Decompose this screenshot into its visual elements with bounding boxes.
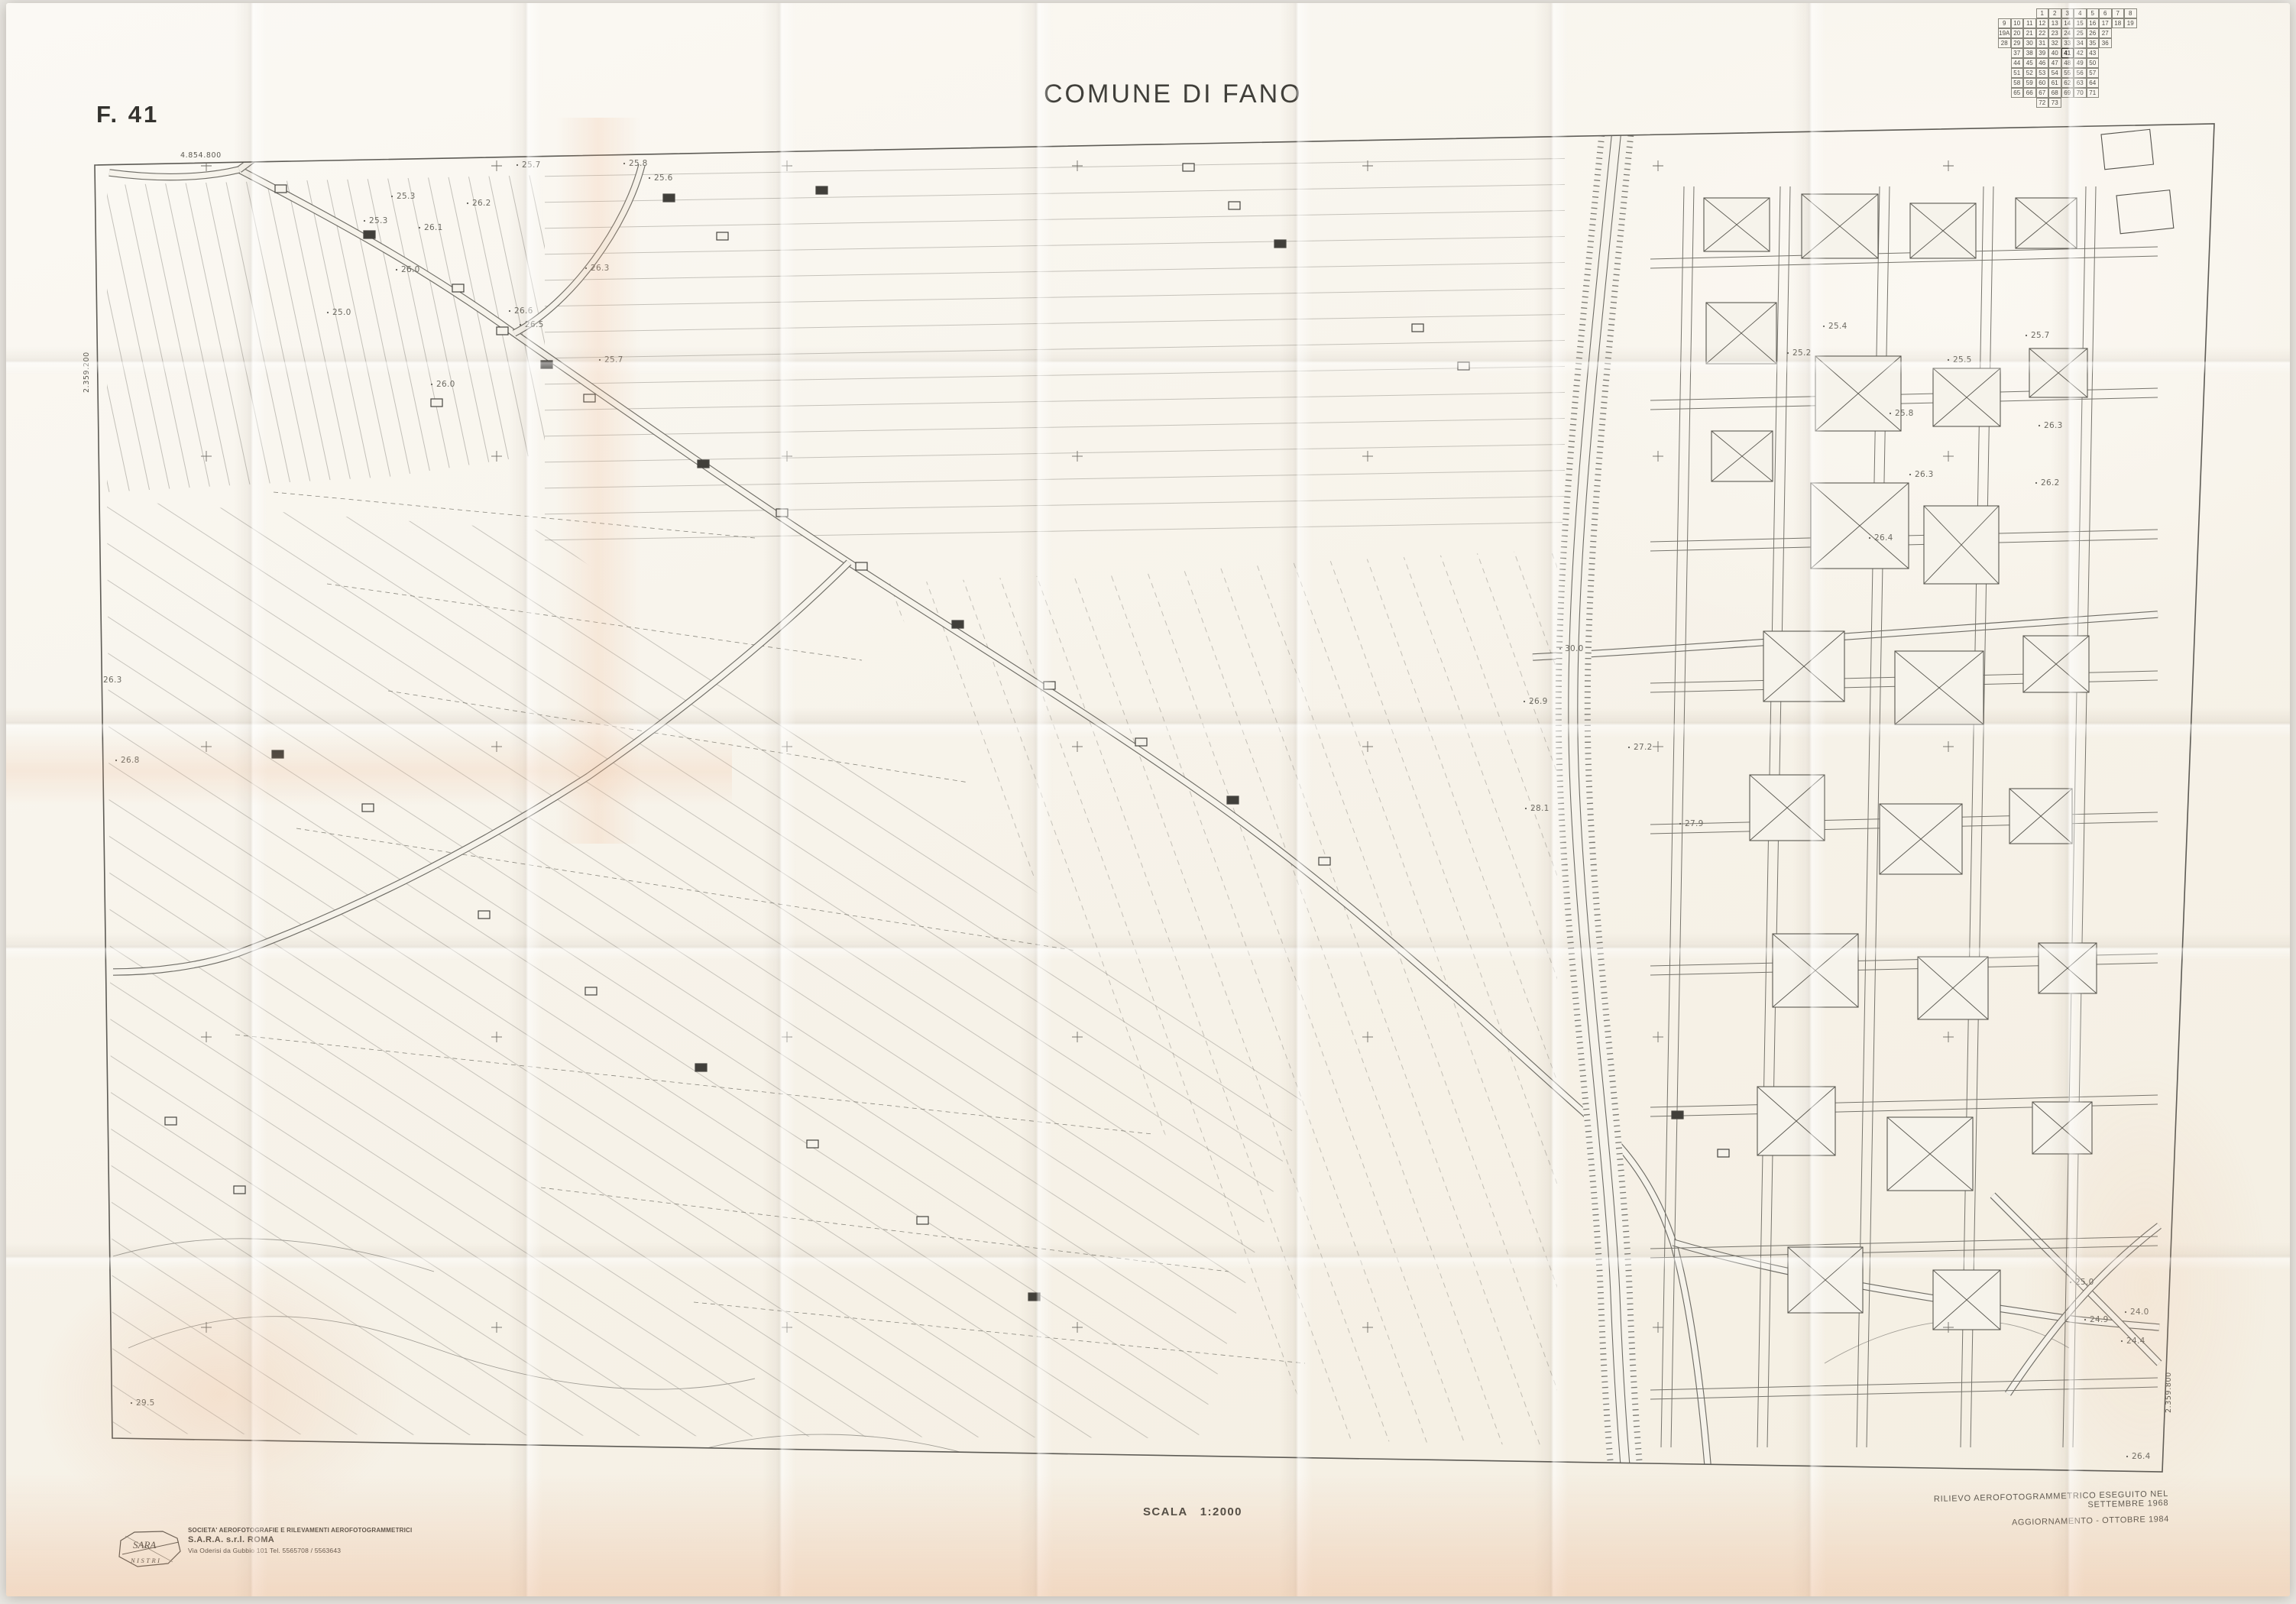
building-block-crossed [2009, 789, 2072, 844]
spot-height-dot [1679, 823, 1681, 825]
spot-height-dot [225, 1457, 226, 1459]
house [362, 804, 374, 812]
spot-height-label: 26.0 [436, 380, 455, 389]
spot-height-label: 27.9 [1685, 819, 1704, 828]
house [364, 231, 375, 238]
field-strips-topcenter [545, 141, 1565, 546]
index-cell: 13 [2048, 18, 2061, 28]
house [541, 361, 552, 368]
index-cell: 29 [2011, 38, 2024, 48]
spot-height-label: 25.3 [397, 192, 416, 201]
house [695, 1064, 707, 1071]
spot-height-dot [1787, 352, 1789, 354]
building-block-crossed [1788, 1247, 1863, 1313]
spot-height-dot [2026, 335, 2027, 336]
index-cell: 48 [2061, 58, 2074, 68]
frame-coordinate-right: 2.359.800 [2165, 1372, 2173, 1413]
map-sheet: 25.725.825.625.326.226.125.326.026.325.0… [6, 3, 2290, 1596]
sheet-index-grid: 1234567891011121314151617181919A20212223… [1998, 8, 2137, 108]
house [856, 562, 867, 570]
spot-height-label: 26.3 [1915, 470, 1934, 479]
spot-height-label: 25.7 [522, 160, 541, 170]
index-cell: 54 [2048, 68, 2061, 78]
spot-height-label: 26.3 [103, 676, 122, 685]
building-block-crossed [2039, 943, 2097, 993]
spot-height-label: 25.7 [2031, 331, 2050, 340]
spot-height-label: 25.6 [654, 173, 673, 183]
spot-height-dot [1869, 537, 1870, 539]
field-parcels-layer [107, 141, 1565, 1446]
spot-height-label: 26.6 [514, 306, 533, 316]
house [1672, 1111, 1683, 1119]
spot-height-dot [364, 220, 365, 222]
index-cell: 47 [2048, 58, 2061, 68]
spot-height-label: 25.8 [629, 159, 648, 168]
index-cell: 26 [2087, 28, 2100, 38]
building-block-crossed [1880, 804, 1962, 874]
railway-layer [1559, 130, 1640, 1475]
spot-height-dot [585, 267, 587, 269]
index-cell: 11 [2023, 18, 2036, 28]
spot-height-dot [98, 679, 99, 681]
spot-height-label: 25.3 [369, 216, 388, 225]
house [1458, 362, 1469, 370]
building-block-crossed [1933, 1270, 2000, 1330]
urban-blocks-layer [1650, 69, 2174, 1447]
index-cell: 59 [2023, 78, 2036, 88]
building-outline [2101, 129, 2153, 169]
street-line [1650, 1387, 2158, 1399]
street-line [1650, 1236, 2158, 1249]
spot-height-label: 26.9 [1529, 697, 1548, 706]
spot-height-dot [419, 227, 420, 228]
index-cell: 51 [2011, 68, 2024, 78]
spot-height-dot [396, 269, 397, 271]
spot-height-label: 30.0 [1565, 644, 1584, 653]
index-cell: 16 [2087, 18, 2100, 28]
spot-height-label: 24.4 [2126, 1337, 2145, 1346]
index-cell: 19A [1998, 28, 2011, 38]
index-cell: 38 [2023, 48, 2036, 58]
index-cell: 31 [2036, 38, 2049, 48]
spot-height-dot [1628, 747, 1630, 748]
spot-height-dot [1890, 413, 1891, 414]
index-cell: 55 [2061, 68, 2074, 78]
house [1044, 682, 1055, 689]
spot-height-label: 25.5 [1953, 355, 1972, 365]
index-cell: 61 [2048, 78, 2061, 88]
house [717, 232, 728, 240]
index-cell: 50 [2087, 58, 2100, 68]
spot-height-label: 28.1 [1530, 804, 1550, 813]
index-cell: 22 [2036, 28, 2049, 38]
index-cell: 66 [2023, 88, 2036, 98]
spot-height-label: 26.8 [121, 756, 140, 765]
index-cell: 10 [2011, 18, 2024, 28]
index-cell: 63 [2074, 78, 2087, 88]
stream-layer [121, 1478, 541, 1524]
spot-height-dot [1948, 359, 1949, 361]
index-cell: 62 [2061, 78, 2074, 88]
spot-height-label: 29.9 [230, 1453, 249, 1463]
index-cell: 21 [2023, 28, 2036, 38]
spot-height-dot [1823, 326, 1825, 327]
index-cell: 45 [2023, 58, 2036, 68]
spot-height-dot [599, 359, 601, 361]
publisher-logo: SARA NISTRI [119, 1531, 180, 1567]
index-cell: 46 [2036, 58, 2049, 68]
index-cell: 57 [2087, 68, 2100, 78]
spot-height-label: 25.0 [2075, 1278, 2094, 1287]
building-block-crossed [2032, 1102, 2092, 1154]
map-title: COMUNE DI FANO [1044, 79, 1303, 109]
index-cell: 58 [2011, 78, 2024, 88]
index-cell: 49 [2074, 58, 2087, 68]
house [1028, 1293, 1040, 1301]
spot-height-dot [2070, 1282, 2071, 1283]
building-block-crossed [1706, 303, 1776, 364]
index-cell: 9 [1998, 18, 2011, 28]
house [1227, 796, 1239, 804]
scale-label: SCALA 1:2000 [1143, 1505, 1242, 1518]
spot-height-label: 29.5 [136, 1398, 155, 1408]
index-cell: 67 [2036, 88, 2049, 98]
house [952, 621, 963, 628]
house [478, 911, 490, 919]
spot-height-dot [2121, 1340, 2123, 1342]
index-cell: 39 [2036, 48, 2049, 58]
index-cell: 40 [2048, 48, 2061, 58]
house [165, 1117, 176, 1125]
road-surface [239, 92, 336, 170]
house [272, 750, 283, 758]
house [663, 194, 675, 202]
road-casing [239, 92, 336, 170]
house [1135, 738, 1147, 746]
building-block-crossed [1924, 506, 1999, 584]
index-cell: 19 [2124, 18, 2137, 28]
spot-height-label: 25.2 [1792, 348, 1812, 358]
house [275, 185, 287, 193]
house [807, 1140, 818, 1148]
index-cell: 15 [2074, 18, 2087, 28]
building-block-crossed [1918, 957, 1988, 1019]
street-line [1650, 1378, 2158, 1390]
spot-height-dot [327, 312, 329, 313]
building-block-crossed [1773, 934, 1858, 1007]
publisher-line3: Via Oderisi da Gubbio 101 Tel. 5565708 /… [188, 1547, 412, 1554]
house [698, 460, 709, 468]
spot-height-dot [2126, 1456, 2128, 1457]
house [1718, 1149, 1729, 1157]
building-block-crossed [1763, 631, 1844, 702]
house [584, 394, 595, 402]
spot-height-label: 26.3 [2044, 421, 2063, 430]
house [1183, 164, 1194, 171]
building-block-crossed [1895, 651, 1983, 724]
house [917, 1217, 928, 1224]
house [1229, 202, 1240, 209]
spot-height-label: 26.3 [591, 264, 610, 273]
spot-height-dot [467, 203, 468, 204]
house [1412, 324, 1423, 332]
index-cell: 52 [2023, 68, 2036, 78]
index-cell: 18 [2112, 18, 2125, 28]
house [585, 987, 597, 995]
index-cell: 72 [2036, 98, 2049, 108]
building-block-crossed [1910, 203, 1976, 258]
spot-height-dot [1559, 648, 1561, 650]
railway-corridor [1573, 130, 1626, 1475]
spot-height-label: 25.7 [604, 355, 623, 365]
index-cell: 37 [2011, 48, 2024, 58]
spot-height-dot [649, 177, 650, 179]
index-cell: 56 [2074, 68, 2087, 78]
spot-height-label: 26.2 [472, 199, 491, 208]
index-cell: 32 [2048, 38, 2061, 48]
index-cell: 3 [2061, 8, 2074, 18]
spot-height-dot [517, 164, 518, 166]
index-cell: 44 [2011, 58, 2024, 68]
index-cell: 34 [2074, 38, 2087, 48]
street-line [1671, 186, 1694, 1447]
spot-height-label: 26.4 [2132, 1452, 2151, 1461]
index-cell: 42 [2074, 48, 2087, 58]
road-surface [109, 170, 239, 177]
logo-text-secondary: NISTRI [130, 1557, 162, 1564]
house [452, 284, 464, 292]
index-cell: 6 [2099, 8, 2112, 18]
index-cell: 68 [2048, 88, 2061, 98]
spot-height-dot [509, 310, 510, 312]
index-cell: 14 [2061, 18, 2074, 28]
index-cell: 30 [2023, 38, 2036, 48]
index-cell: 4 [2074, 8, 2087, 18]
spot-height-label: 26.1 [424, 223, 443, 232]
index-cell: 73 [2048, 98, 2061, 108]
index-cell: 2 [2048, 8, 2061, 18]
spot-height-dot [115, 760, 117, 761]
building-block-crossed [1802, 194, 1878, 258]
index-cell: 43 [2087, 48, 2100, 58]
building-block-crossed [1887, 1117, 1973, 1191]
spot-height-dot [1909, 474, 1911, 475]
house [1319, 857, 1330, 865]
index-cell: 7 [2112, 8, 2125, 18]
house [816, 186, 827, 194]
spot-height-label: 25.0 [332, 308, 351, 317]
street-line [1650, 256, 2158, 268]
index-cell: 20 [2011, 28, 2024, 38]
index-cell: 70 [2074, 88, 2087, 98]
spot-height-label: 26.0 [401, 265, 420, 274]
stream-line [121, 1478, 541, 1524]
spot-height-dot [2084, 1319, 2086, 1320]
building-block-crossed [1811, 483, 1909, 569]
spot-height-dot [2039, 425, 2040, 426]
house [763, 141, 774, 148]
frame-coordinate-left: 2.359.200 [83, 352, 91, 393]
index-cell: 24 [2061, 28, 2074, 38]
index-cell: 65 [2011, 88, 2024, 98]
building-block-crossed [1815, 356, 1901, 431]
index-cell: 28 [1998, 38, 2011, 48]
house [431, 399, 442, 407]
publisher-line2: S.A.R.A. s.r.l. ROMA [188, 1535, 412, 1544]
spot-height-label: 24.0 [2130, 1308, 2149, 1317]
logo-text-primary: SARA [133, 1539, 156, 1551]
index-cell: 17 [2099, 18, 2112, 28]
index-cell: 71 [2087, 88, 2100, 98]
spot-height-label: 26.2 [2041, 478, 2060, 488]
spot-height-dot [623, 163, 625, 164]
street-line [1650, 1246, 2158, 1258]
index-cell: 27 [2099, 28, 2112, 38]
spot-height-dot [520, 324, 521, 326]
spot-height-dot [2125, 1311, 2126, 1313]
index-cell: 1 [2036, 8, 2049, 18]
index-cell: 33 [2061, 38, 2074, 48]
index-cell: 35 [2087, 38, 2100, 48]
publisher-line1: SOCIETA' AEROFOTOGRAFIE E RILEVAMENTI AE… [188, 1527, 412, 1534]
index-cell: 12 [2036, 18, 2049, 28]
index-cell: 69 [2061, 88, 2074, 98]
building-block-crossed [2016, 198, 2077, 248]
building-block-crossed [1711, 431, 1773, 481]
index-cell-active: 41 [2061, 48, 2074, 58]
house [776, 509, 788, 517]
house [234, 1186, 245, 1194]
spot-height-dot [1524, 701, 1525, 702]
spot-height-dot [1525, 808, 1527, 809]
survey-block: RILIEVO AEROFOTOGRAMMETRICO ESEGUITO NEL… [1916, 1489, 2169, 1529]
publisher-block: SOCIETA' AEROFOTOGRAFIE E RILEVAMENTI AE… [188, 1527, 412, 1554]
spot-height-label: 24.9 [2090, 1315, 2109, 1324]
house [497, 327, 508, 335]
index-cell: 5 [2087, 8, 2100, 18]
building-block-crossed [1933, 368, 2000, 426]
spot-height-label: 27.2 [1634, 743, 1653, 752]
index-cell: 53 [2036, 68, 2049, 78]
spot-height-dot [2035, 482, 2037, 484]
sheet-number: F. 41 [96, 101, 159, 128]
building-block-crossed [1704, 198, 1770, 251]
index-cell: 36 [2099, 38, 2112, 48]
spot-height-label: 26.4 [1874, 533, 1893, 543]
index-cell: 25 [2074, 28, 2087, 38]
index-cell: 8 [2124, 8, 2137, 18]
field-strips-topleft [107, 175, 545, 492]
building-block-crossed [2023, 636, 2089, 692]
frame-coordinate-top: 4.854.800 [180, 151, 222, 160]
index-cell: 64 [2087, 78, 2100, 88]
spot-height-dot [131, 1402, 132, 1404]
spot-height-label: 25.8 [1895, 409, 1914, 418]
building-outline [2116, 190, 2174, 234]
house [1274, 240, 1286, 248]
building-block-crossed [2029, 348, 2087, 397]
spot-height-dot [431, 384, 432, 385]
index-cell: 23 [2048, 28, 2061, 38]
map-canvas: 25.725.825.625.326.226.125.326.026.325.0… [6, 3, 2296, 1604]
spot-height-label: 25.4 [1828, 322, 1847, 331]
spot-height-dot [391, 196, 393, 197]
spot-height-label: 26.5 [525, 320, 544, 329]
index-cell: 60 [2036, 78, 2049, 88]
building-block-crossed [1757, 1087, 1835, 1155]
building-block-crossed [1750, 775, 1825, 841]
